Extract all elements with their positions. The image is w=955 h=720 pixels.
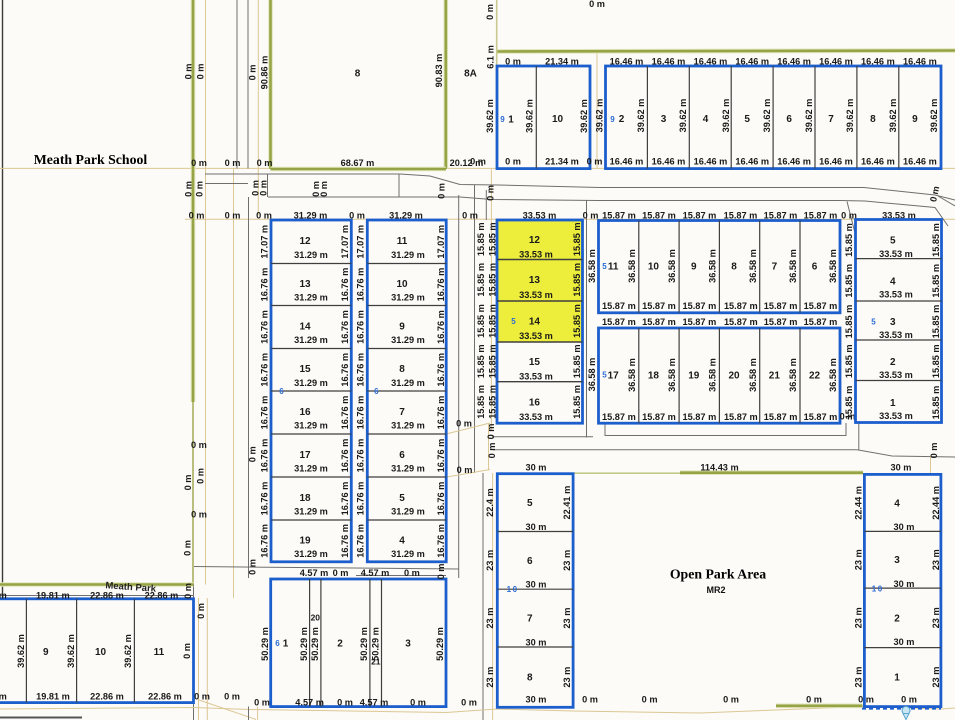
svg-text:5: 5 <box>511 317 516 326</box>
svg-text:17: 17 <box>299 450 311 461</box>
svg-text:33.53 m: 33.53 m <box>519 372 553 382</box>
svg-text:16.76 m: 16.76 m <box>260 482 270 516</box>
svg-text:3: 3 <box>890 317 896 328</box>
svg-text:9: 9 <box>399 322 405 333</box>
svg-text:16.46 m: 16.46 m <box>652 57 686 67</box>
svg-text:15.87 m: 15.87 m <box>764 412 798 422</box>
svg-text:15.85 m: 15.85 m <box>931 305 941 339</box>
svg-text:22.41 m: 22.41 m <box>562 486 572 520</box>
svg-text:16.76 m: 16.76 m <box>340 524 350 558</box>
svg-text:16.76 m: 16.76 m <box>340 482 350 516</box>
svg-text:9: 9 <box>610 115 615 124</box>
svg-text:13: 13 <box>529 275 541 286</box>
svg-text:16.76 m: 16.76 m <box>260 310 270 344</box>
svg-text:0 m: 0 m <box>248 559 258 575</box>
svg-text:9: 9 <box>912 114 918 125</box>
svg-text:0 m: 0 m <box>254 698 270 708</box>
svg-text:30 m: 30 m <box>894 579 915 589</box>
svg-text:15.85 m: 15.85 m <box>476 385 486 419</box>
svg-text:50.29 m: 50.29 m <box>299 627 309 661</box>
svg-text:7: 7 <box>828 114 834 125</box>
svg-text:0 m: 0 m <box>462 211 478 221</box>
svg-text:31.29 m: 31.29 m <box>294 335 328 345</box>
svg-text:90.86 m: 90.86 m <box>260 56 270 90</box>
svg-text:3: 3 <box>894 555 900 566</box>
svg-text:15.87 m: 15.87 m <box>724 301 758 311</box>
svg-text:11: 11 <box>154 647 165 658</box>
svg-text:30 m: 30 m <box>526 522 547 532</box>
svg-text:30 m: 30 m <box>891 463 912 473</box>
svg-text:1: 1 <box>508 115 514 126</box>
svg-text:114.43 m: 114.43 m <box>700 463 738 473</box>
svg-text:11: 11 <box>608 262 619 273</box>
svg-text:4: 4 <box>890 276 896 287</box>
svg-text:4.57 m: 4.57 m <box>300 568 329 578</box>
svg-text:39.62 m: 39.62 m <box>721 99 731 133</box>
svg-text:5: 5 <box>602 262 607 271</box>
svg-text:22.4 m: 22.4 m <box>485 488 495 517</box>
svg-text:0 m: 0 m <box>225 158 241 168</box>
svg-text:1: 1 <box>507 585 512 594</box>
svg-text:21.34 m: 21.34 m <box>545 157 579 167</box>
svg-text:0 m: 0 m <box>723 695 739 705</box>
svg-text:15.87 m: 15.87 m <box>683 412 717 422</box>
svg-text:0 m: 0 m <box>259 180 269 196</box>
svg-text:39.62 m: 39.62 m <box>804 99 814 133</box>
svg-text:36.58 m: 36.58 m <box>667 358 677 392</box>
svg-text:31.29 m: 31.29 m <box>391 549 425 559</box>
svg-text:0 m: 0 m <box>248 446 258 462</box>
svg-text:6: 6 <box>275 639 280 648</box>
svg-text:15.87 m: 15.87 m <box>602 317 636 327</box>
svg-text:22.44 m: 22.44 m <box>854 486 864 520</box>
svg-text:17.07 m: 17.07 m <box>436 225 446 259</box>
svg-text:20: 20 <box>311 613 321 623</box>
svg-text:33.53 m: 33.53 m <box>879 330 913 340</box>
svg-text:39.62 m: 39.62 m <box>16 634 26 668</box>
svg-text:17.07 m: 17.07 m <box>356 225 366 259</box>
svg-text:22.86 m: 22.86 m <box>90 692 124 702</box>
svg-text:16.76 m: 16.76 m <box>260 524 270 558</box>
svg-text:0 m: 0 m <box>196 468 206 484</box>
svg-text:0 m: 0 m <box>858 695 874 705</box>
svg-text:68.67 m: 68.67 m <box>341 158 375 168</box>
svg-text:23 m: 23 m <box>485 550 495 571</box>
svg-text:90.83 m: 90.83 m <box>434 54 444 88</box>
svg-text:33.53 m: 33.53 m <box>879 411 913 421</box>
svg-text:0 m: 0 m <box>505 157 521 167</box>
svg-text:33.53 m: 33.53 m <box>519 250 553 260</box>
svg-text:4.57 m: 4.57 m <box>360 698 389 708</box>
svg-text:19.81 m: 19.81 m <box>0 591 7 601</box>
svg-text:15.87 m: 15.87 m <box>642 412 676 422</box>
svg-text:0 m: 0 m <box>183 583 193 599</box>
svg-text:0 m: 0 m <box>337 698 353 708</box>
svg-text:33.53 m: 33.53 m <box>519 290 553 300</box>
svg-text:8: 8 <box>355 69 361 80</box>
svg-text:39.62 m: 39.62 m <box>636 99 646 133</box>
svg-text:14: 14 <box>299 322 311 333</box>
svg-text:22.86 m: 22.86 m <box>148 692 182 702</box>
svg-text:16.76 m: 16.76 m <box>356 353 366 387</box>
svg-text:36.58 m: 36.58 m <box>828 358 838 392</box>
svg-text:21.34 m: 21.34 m <box>545 57 579 67</box>
svg-text:5: 5 <box>602 371 607 380</box>
svg-text:7: 7 <box>527 614 533 625</box>
svg-text:0 m: 0 m <box>404 568 420 578</box>
svg-text:0 m: 0 m <box>582 695 598 705</box>
svg-text:0 m: 0 m <box>196 603 206 619</box>
svg-text:16.46 m: 16.46 m <box>777 57 811 67</box>
svg-text:15.85 m: 15.85 m <box>844 305 854 339</box>
svg-text:31.29 m: 31.29 m <box>391 507 425 517</box>
svg-text:0 m: 0 m <box>485 4 495 20</box>
svg-text:15.87 m: 15.87 m <box>642 301 676 311</box>
svg-text:15.85 m: 15.85 m <box>572 344 582 378</box>
svg-text:16.46 m: 16.46 m <box>819 57 853 67</box>
svg-text:16.76 m: 16.76 m <box>260 353 270 387</box>
svg-text:16.76 m: 16.76 m <box>260 396 270 430</box>
svg-text:0 m: 0 m <box>194 692 210 702</box>
svg-text:16.76 m: 16.76 m <box>260 268 270 302</box>
svg-text:8: 8 <box>527 673 533 684</box>
svg-text:15.85 m: 15.85 m <box>488 222 498 256</box>
svg-text:36.58 m: 36.58 m <box>788 249 798 283</box>
svg-text:15.85 m: 15.85 m <box>488 263 498 297</box>
svg-text:16.76 m: 16.76 m <box>340 396 350 430</box>
svg-text:39.62 m: 39.62 m <box>845 99 855 133</box>
svg-text:18: 18 <box>648 371 660 382</box>
svg-text:15.85 m: 15.85 m <box>931 386 941 420</box>
svg-text:0 m: 0 m <box>191 440 207 450</box>
svg-text:36.58 m: 36.58 m <box>707 358 717 392</box>
svg-text:15.85 m: 15.85 m <box>844 344 854 378</box>
svg-text:15.87 m: 15.87 m <box>804 301 838 311</box>
svg-text:15.85 m: 15.85 m <box>488 344 498 378</box>
svg-text:36.58 m: 36.58 m <box>828 249 838 283</box>
svg-text:36.58 m: 36.58 m <box>788 358 798 392</box>
svg-text:15.87 m: 15.87 m <box>602 301 636 311</box>
svg-text:39.62 m: 39.62 m <box>678 99 688 133</box>
svg-text:16.76 m: 16.76 m <box>356 482 366 516</box>
svg-text:8: 8 <box>731 262 737 273</box>
svg-text:39.62 m: 39.62 m <box>929 99 939 133</box>
svg-text:33.53 m: 33.53 m <box>519 412 553 422</box>
svg-text:15.85 m: 15.85 m <box>476 263 486 297</box>
svg-text:16.76 m: 16.76 m <box>436 268 446 302</box>
svg-text:2: 2 <box>890 357 896 368</box>
svg-text:0 m: 0 m <box>183 475 193 491</box>
svg-text:16.46 m: 16.46 m <box>735 57 769 67</box>
svg-text:16.46 m: 16.46 m <box>694 57 728 67</box>
svg-text:39.62 m: 39.62 m <box>525 99 535 133</box>
svg-text:0 m: 0 m <box>182 643 192 659</box>
svg-text:6: 6 <box>279 387 284 396</box>
svg-text:0 m: 0 m <box>806 695 822 705</box>
svg-text:0 m: 0 m <box>257 158 273 168</box>
svg-text:10: 10 <box>396 279 408 290</box>
svg-text:16.46 m: 16.46 m <box>777 157 811 167</box>
svg-text:16.76 m: 16.76 m <box>340 310 350 344</box>
svg-text:16: 16 <box>299 407 311 418</box>
svg-text:15.85 m: 15.85 m <box>844 264 854 298</box>
svg-text:15: 15 <box>529 357 541 368</box>
svg-text:16.76 m: 16.76 m <box>356 524 366 558</box>
svg-text:16.76 m: 16.76 m <box>436 482 446 516</box>
svg-text:19: 19 <box>299 535 311 546</box>
svg-text:30 m: 30 m <box>526 695 547 705</box>
svg-text:39.62 m: 39.62 m <box>595 99 605 133</box>
svg-text:15.85 m: 15.85 m <box>572 385 582 419</box>
svg-text:31.29 m: 31.29 m <box>391 464 425 474</box>
svg-text:17.07 m: 17.07 m <box>340 225 350 259</box>
svg-text:15.87 m: 15.87 m <box>804 317 838 327</box>
svg-text:16.46 m: 16.46 m <box>861 57 895 67</box>
svg-text:31.29 m: 31.29 m <box>294 250 328 260</box>
svg-text:39.62 m: 39.62 m <box>66 634 76 668</box>
svg-text:15.85 m: 15.85 m <box>476 344 486 378</box>
svg-text:10: 10 <box>95 647 107 658</box>
svg-text:Meath Park School: Meath Park School <box>34 152 148 167</box>
svg-text:0 m: 0 m <box>589 0 605 9</box>
svg-text:39.62 m: 39.62 m <box>123 634 133 668</box>
svg-text:15.85 m: 15.85 m <box>931 264 941 298</box>
svg-text:15.85 m: 15.85 m <box>476 222 486 256</box>
svg-text:36.58 m: 36.58 m <box>748 358 758 392</box>
svg-text:0 m: 0 m <box>642 695 658 705</box>
svg-text:16.76 m: 16.76 m <box>356 439 366 473</box>
svg-text:19.81 m: 19.81 m <box>36 692 70 702</box>
svg-text:4: 4 <box>703 114 709 125</box>
svg-text:16.46 m: 16.46 m <box>652 157 686 167</box>
svg-text:18: 18 <box>299 493 311 504</box>
svg-text:0 m: 0 m <box>487 443 497 459</box>
svg-text:0 m: 0 m <box>583 211 599 221</box>
svg-text:15.85 m: 15.85 m <box>476 304 486 338</box>
svg-text:4: 4 <box>894 498 900 509</box>
svg-text:0 m: 0 m <box>436 564 446 580</box>
svg-text:1: 1 <box>283 639 289 650</box>
svg-text:0 m: 0 m <box>256 211 272 221</box>
svg-text:39.62 m: 39.62 m <box>762 99 772 133</box>
svg-text:39.62 m: 39.62 m <box>888 99 898 133</box>
svg-text:16.76 m: 16.76 m <box>436 396 446 430</box>
svg-text:33.53 m: 33.53 m <box>879 249 913 259</box>
svg-text:33.53 m: 33.53 m <box>519 331 553 341</box>
svg-text:15.87 m: 15.87 m <box>683 317 717 327</box>
svg-text:31.29 m: 31.29 m <box>294 464 328 474</box>
svg-text:16.46 m: 16.46 m <box>819 157 853 167</box>
svg-text:8A: 8A <box>464 69 477 80</box>
svg-text:MR2: MR2 <box>706 585 725 595</box>
svg-text:33.53 m: 33.53 m <box>879 370 913 380</box>
svg-text:10: 10 <box>648 262 660 273</box>
svg-text:9: 9 <box>43 647 49 658</box>
svg-text:31.29 m: 31.29 m <box>294 378 328 388</box>
svg-text:16.46 m: 16.46 m <box>903 57 937 67</box>
svg-text:20: 20 <box>728 371 740 382</box>
svg-text:6: 6 <box>527 556 533 567</box>
svg-text:31.29 m: 31.29 m <box>294 549 328 559</box>
svg-text:50.29 m: 50.29 m <box>371 627 381 661</box>
svg-text:39.62 m: 39.62 m <box>579 99 589 133</box>
svg-text:15.87 m: 15.87 m <box>642 317 676 327</box>
svg-text:15.85 m: 15.85 m <box>844 223 854 257</box>
svg-text:30 m: 30 m <box>526 580 547 590</box>
svg-text:19.81 m: 19.81 m <box>0 692 7 702</box>
svg-text:4.57 m: 4.57 m <box>361 568 390 578</box>
svg-text:6: 6 <box>812 262 818 273</box>
svg-text:0 m: 0 m <box>901 695 917 705</box>
svg-text:0 m: 0 m <box>191 158 207 168</box>
svg-text:15.85 m: 15.85 m <box>844 386 854 420</box>
svg-text:0 m: 0 m <box>191 510 207 520</box>
svg-text:36.58 m: 36.58 m <box>667 249 677 283</box>
svg-text:15.85 m: 15.85 m <box>931 344 941 378</box>
svg-text:15.85 m: 15.85 m <box>572 222 582 256</box>
svg-text:0: 0 <box>513 585 518 594</box>
svg-text:1: 1 <box>890 398 896 409</box>
svg-text:15.87 m: 15.87 m <box>683 301 717 311</box>
svg-text:10: 10 <box>552 114 564 125</box>
svg-text:2: 2 <box>894 613 900 624</box>
svg-text:15.87 m: 15.87 m <box>764 301 798 311</box>
svg-text:23 m: 23 m <box>931 667 941 688</box>
svg-text:36.58 m: 36.58 m <box>627 358 637 392</box>
svg-text:50.29 m: 50.29 m <box>435 627 445 661</box>
svg-text:16.76 m: 16.76 m <box>356 268 366 302</box>
svg-text:16: 16 <box>529 397 541 408</box>
svg-text:31.29 m: 31.29 m <box>391 293 425 303</box>
svg-text:0 m: 0 m <box>437 183 447 199</box>
svg-text:2: 2 <box>337 639 343 650</box>
svg-text:0 m: 0 m <box>195 181 205 197</box>
svg-text:16.46 m: 16.46 m <box>861 157 895 167</box>
svg-text:9: 9 <box>691 262 697 273</box>
svg-text:16.46 m: 16.46 m <box>610 157 644 167</box>
svg-text:0 m: 0 m <box>189 211 205 221</box>
svg-text:22.44 m: 22.44 m <box>931 486 941 520</box>
svg-text:16.76 m: 16.76 m <box>340 439 350 473</box>
svg-text:0 m: 0 m <box>224 692 240 702</box>
svg-text:12: 12 <box>529 235 541 246</box>
svg-text:16.76 m: 16.76 m <box>340 353 350 387</box>
svg-text:50.29 m: 50.29 m <box>359 627 369 661</box>
svg-text:16.76 m: 16.76 m <box>356 396 366 430</box>
svg-text:16.46 m: 16.46 m <box>735 157 769 167</box>
svg-text:4.57 m: 4.57 m <box>295 698 324 708</box>
svg-text:36.58 m: 36.58 m <box>587 358 597 392</box>
svg-text:23 m: 23 m <box>562 608 572 629</box>
svg-text:50.29 m: 50.29 m <box>260 627 270 661</box>
svg-text:14: 14 <box>529 317 541 328</box>
svg-text:33.53 m: 33.53 m <box>879 290 913 300</box>
svg-text:5: 5 <box>399 493 405 504</box>
svg-text:31.29 m: 31.29 m <box>391 335 425 345</box>
svg-text:15.85 m: 15.85 m <box>931 223 941 257</box>
svg-text:17.07 m: 17.07 m <box>260 225 270 259</box>
svg-text:31.29 m: 31.29 m <box>294 293 328 303</box>
svg-text:7: 7 <box>399 407 405 418</box>
svg-text:15.85 m: 15.85 m <box>488 304 498 338</box>
svg-text:0 m: 0 m <box>248 65 258 81</box>
svg-text:23 m: 23 m <box>562 667 572 688</box>
svg-text:8: 8 <box>399 364 405 375</box>
svg-text:23 m: 23 m <box>854 667 864 688</box>
svg-text:15.87 m: 15.87 m <box>724 412 758 422</box>
svg-text:0 m: 0 m <box>225 211 241 221</box>
svg-text:0 m: 0 m <box>461 698 477 708</box>
svg-text:16.46 m: 16.46 m <box>610 57 644 67</box>
svg-text:0 m: 0 m <box>183 540 193 556</box>
svg-text:11: 11 <box>397 236 408 247</box>
svg-text:15.85 m: 15.85 m <box>488 385 498 419</box>
svg-text:16.76 m: 16.76 m <box>436 310 446 344</box>
svg-text:50.29 m: 50.29 m <box>310 627 320 661</box>
svg-text:3: 3 <box>661 114 667 125</box>
svg-text:23 m: 23 m <box>854 607 864 628</box>
svg-text:0 m: 0 m <box>333 568 349 578</box>
svg-text:23 m: 23 m <box>931 549 941 570</box>
svg-text:15.87 m: 15.87 m <box>804 412 838 422</box>
svg-text:36.58 m: 36.58 m <box>748 249 758 283</box>
svg-text:12: 12 <box>299 236 311 247</box>
svg-text:15.87 m: 15.87 m <box>724 317 758 327</box>
svg-text:16.46 m: 16.46 m <box>903 157 937 167</box>
svg-text:23 m: 23 m <box>562 550 572 571</box>
svg-text:16.76 m: 16.76 m <box>356 310 366 344</box>
svg-text:13: 13 <box>299 279 311 290</box>
svg-text:19.81 m: 19.81 m <box>36 591 70 601</box>
svg-text:22: 22 <box>809 371 821 382</box>
svg-text:21: 21 <box>769 371 781 382</box>
svg-text:16.76 m: 16.76 m <box>260 439 270 473</box>
svg-text:15.85 m: 15.85 m <box>572 304 582 338</box>
svg-text:0 m: 0 m <box>486 185 496 201</box>
svg-text:30 m: 30 m <box>526 463 547 473</box>
svg-text:5: 5 <box>871 317 876 326</box>
svg-text:0 m: 0 m <box>587 157 603 167</box>
svg-text:36.58 m: 36.58 m <box>707 249 717 283</box>
svg-text:0 m: 0 m <box>486 424 496 440</box>
svg-text:23 m: 23 m <box>931 607 941 628</box>
svg-text:1: 1 <box>894 673 900 684</box>
svg-text:15.87 m: 15.87 m <box>764 317 798 327</box>
svg-text:16.46 m: 16.46 m <box>694 157 728 167</box>
svg-text:6: 6 <box>399 450 405 461</box>
svg-text:0 m: 0 m <box>505 57 521 67</box>
svg-text:36.58 m: 36.58 m <box>627 249 637 283</box>
svg-text:39.62 m: 39.62 m <box>485 99 495 133</box>
svg-text:0 m: 0 m <box>319 181 329 197</box>
svg-text:5: 5 <box>744 114 750 125</box>
svg-text:15.87 m: 15.87 m <box>602 412 636 422</box>
svg-text:1: 1 <box>872 585 877 594</box>
svg-text:0 m: 0 m <box>184 181 194 197</box>
svg-text:0 m: 0 m <box>410 698 426 708</box>
svg-text:5: 5 <box>890 236 896 247</box>
svg-text:3: 3 <box>405 639 411 650</box>
svg-text:Open Park Area: Open Park Area <box>670 566 766 581</box>
svg-text:16.76 m: 16.76 m <box>340 268 350 302</box>
svg-text:7: 7 <box>772 262 778 273</box>
svg-text:0 m: 0 m <box>457 465 473 475</box>
svg-text:8: 8 <box>870 114 876 125</box>
svg-text:23 m: 23 m <box>485 667 495 688</box>
svg-text:36.58 m: 36.58 m <box>587 249 597 283</box>
svg-text:16.76 m: 16.76 m <box>436 524 446 558</box>
svg-text:15: 15 <box>299 364 311 375</box>
